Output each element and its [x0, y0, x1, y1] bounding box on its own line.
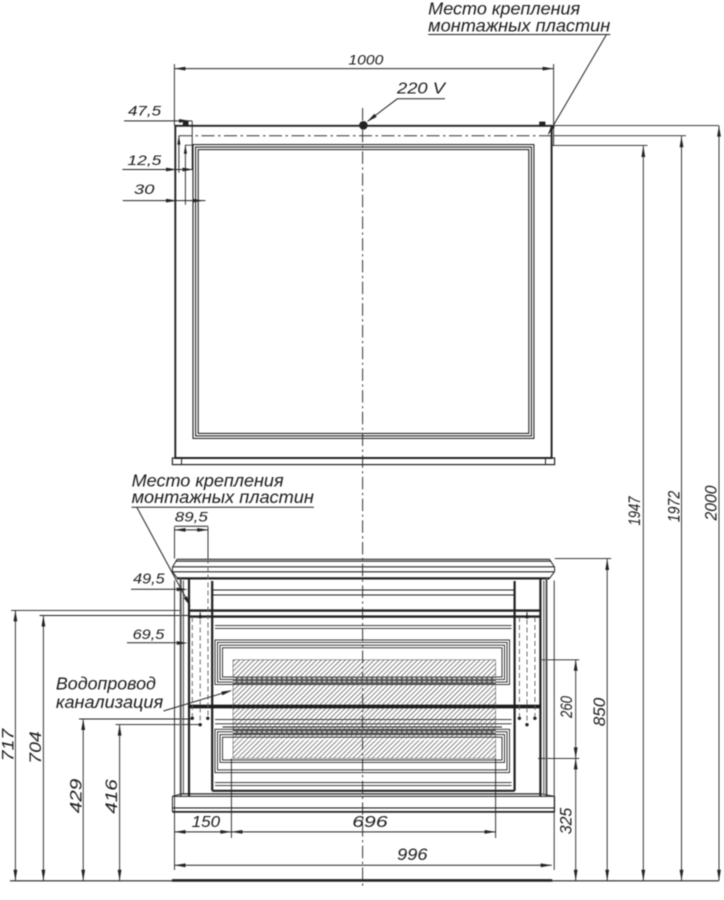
svg-text:1947: 1947	[625, 496, 644, 525]
svg-text:канализация: канализация	[56, 692, 163, 712]
svg-text:260: 260	[557, 696, 576, 719]
svg-text:704: 704	[26, 731, 45, 764]
svg-text:89,5: 89,5	[175, 508, 208, 524]
svg-text:416: 416	[102, 779, 121, 814]
svg-text:69,5: 69,5	[133, 627, 165, 643]
svg-text:49,5: 49,5	[133, 571, 165, 588]
svg-text:2000: 2000	[702, 485, 721, 521]
svg-text:696: 696	[352, 814, 387, 831]
svg-text:Водопровод: Водопровод	[56, 674, 156, 694]
svg-text:12,5: 12,5	[127, 153, 161, 168]
svg-text:996: 996	[397, 846, 428, 864]
svg-text:220 V: 220 V	[396, 81, 447, 98]
svg-text:монтажных пластин: монтажных пластин	[428, 15, 610, 35]
svg-text:150: 150	[192, 814, 221, 831]
svg-text:325: 325	[557, 807, 576, 834]
svg-text:47,5: 47,5	[128, 103, 161, 118]
svg-text:850: 850	[590, 697, 609, 726]
svg-text:1972: 1972	[665, 490, 684, 522]
svg-text:монтажных пластин: монтажных пластин	[132, 487, 315, 507]
svg-text:1000: 1000	[348, 52, 383, 67]
svg-text:429: 429	[67, 778, 86, 813]
svg-text:717: 717	[0, 728, 17, 761]
svg-text:30: 30	[134, 182, 155, 197]
